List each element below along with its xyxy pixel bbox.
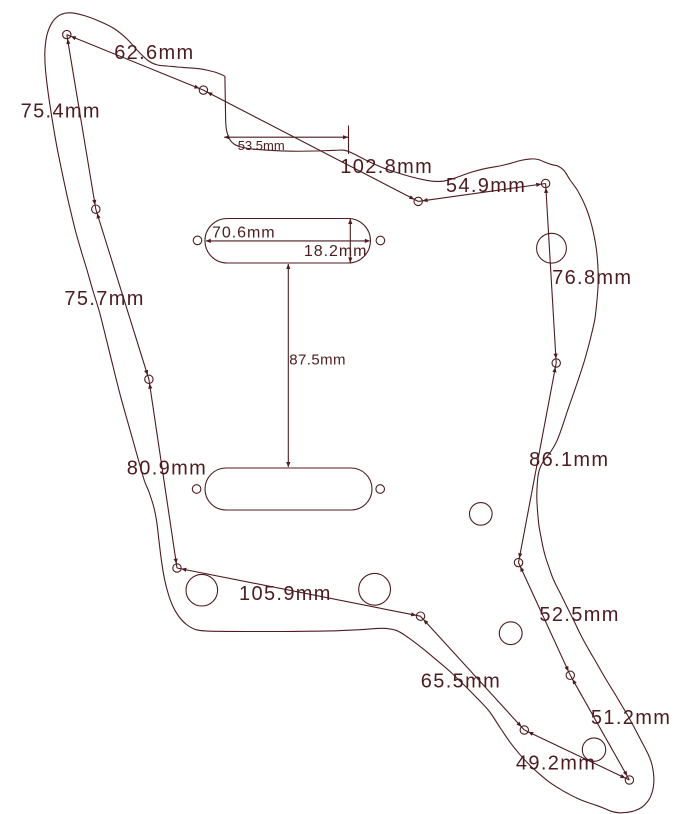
svg-text:52.5mm: 52.5mm: [539, 604, 619, 626]
svg-text:80.9mm: 80.9mm: [127, 458, 207, 480]
svg-text:51.2mm: 51.2mm: [591, 707, 671, 729]
svg-text:105.9mm: 105.9mm: [239, 583, 332, 605]
svg-text:54.9mm: 54.9mm: [446, 175, 526, 197]
svg-text:75.4mm: 75.4mm: [21, 101, 101, 123]
svg-text:62.6mm: 62.6mm: [114, 42, 194, 64]
svg-text:18.2mm: 18.2mm: [304, 243, 368, 260]
svg-text:70.6mm: 70.6mm: [212, 225, 276, 242]
svg-text:76.8mm: 76.8mm: [552, 267, 632, 289]
svg-text:65.5mm: 65.5mm: [421, 670, 501, 692]
svg-text:75.7mm: 75.7mm: [64, 288, 144, 310]
svg-text:49.2mm: 49.2mm: [516, 753, 596, 775]
svg-text:87.5mm: 87.5mm: [289, 352, 346, 369]
svg-text:102.8mm: 102.8mm: [340, 156, 433, 178]
svg-text:86.1mm: 86.1mm: [529, 449, 609, 471]
svg-text:53.5mm: 53.5mm: [238, 138, 285, 153]
